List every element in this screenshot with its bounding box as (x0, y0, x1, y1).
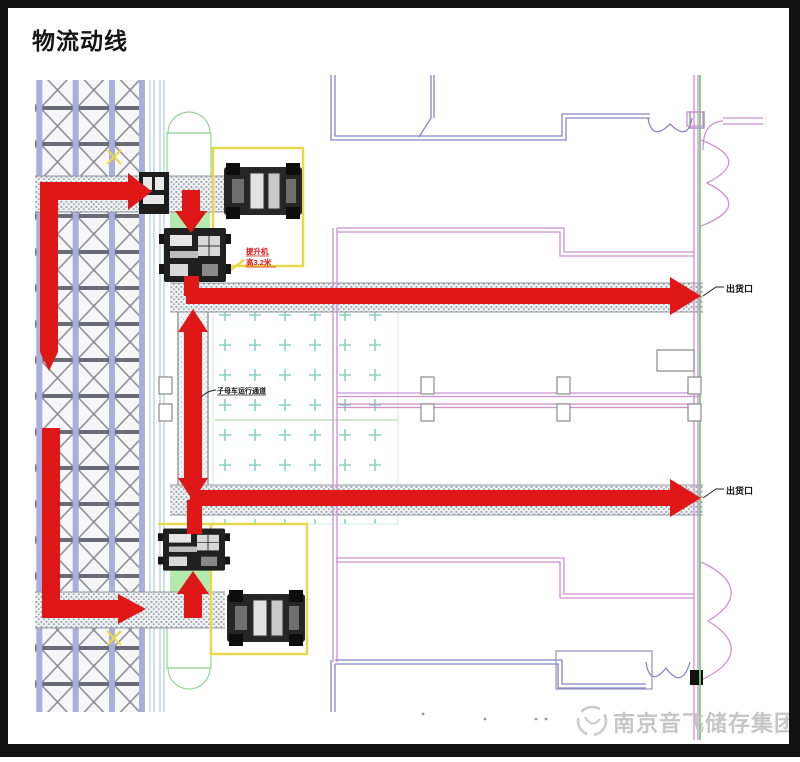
truck-bottom (227, 590, 305, 646)
outlet-label-bottom: 出货口 (726, 485, 753, 496)
double-door-top-blue (648, 118, 692, 132)
conveyor-hatch-top (167, 133, 211, 179)
lift-note-line1: 提升机 (246, 246, 269, 256)
conveyor-hatch-bottom (167, 622, 211, 668)
page-title: 物流动线 (32, 22, 128, 56)
wall-top-blue (331, 75, 704, 140)
flow-link-bottom (187, 500, 202, 534)
centerline-marks (422, 713, 548, 721)
conveyor-loop-bottom-dome (168, 668, 210, 689)
wall-bottom-blue (331, 660, 690, 712)
dock-rect-bottom (556, 651, 652, 689)
double-door-right-top (701, 140, 729, 226)
logistics-flow-plan: 出货口 出货口 子母车运行通道 提升机 高3.2米 南京音飞储存集团 (0, 0, 800, 757)
floor-plan-page: 物流动线 (0, 0, 800, 757)
swirl-logo-icon (578, 707, 606, 735)
conveyor-loop-top-dome (168, 112, 210, 133)
watermark-text: 南京音飞储存集团 (613, 711, 797, 736)
truck-top (224, 163, 302, 219)
stacker-crane-top (159, 228, 231, 282)
shuttle-lane-label: 子母车运行通道 (217, 386, 266, 395)
double-door-right-bottom (701, 562, 731, 680)
wall-block (690, 670, 703, 685)
outlet-label-top: 出货口 (726, 283, 753, 294)
watermark: 南京音飞储存集团 (578, 707, 797, 736)
stacker-crane-bottom (158, 529, 230, 571)
lift-note-line2: 高3.2米 (246, 257, 272, 267)
